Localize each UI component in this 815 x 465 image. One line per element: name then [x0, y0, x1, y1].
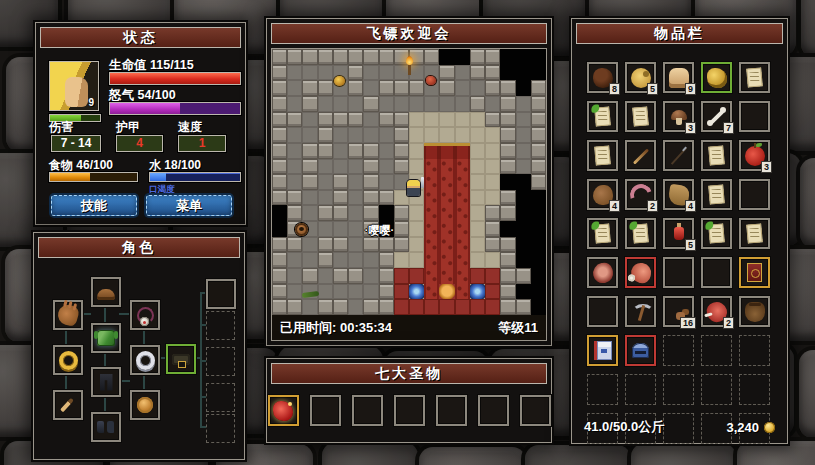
wall-tile [333, 205, 348, 221]
wall-tile [500, 80, 515, 96]
map-wrap: ·嘤嘤· 已用时间: 00:35:34 等级11 [271, 48, 547, 341]
stack-count: 5 [647, 83, 658, 95]
wall-tile [516, 268, 531, 284]
floor-tile [287, 268, 302, 284]
wall-tile [379, 112, 394, 128]
carpet-tile [424, 174, 439, 190]
floor-tile [333, 252, 348, 268]
unexplored-tile [516, 205, 531, 221]
floor-tile [424, 96, 439, 112]
inventory-slot-10[interactable] [739, 101, 770, 132]
map-title: 飞镖欢迎会 [271, 23, 547, 44]
wall-tile [485, 221, 500, 237]
floor-tile [363, 65, 378, 81]
equipment-slot-amulet[interactable] [130, 300, 160, 330]
carpet-trim-tile [455, 143, 470, 159]
skills-button[interactable]: 技能 [51, 195, 137, 216]
armor-label: 护甲 [116, 119, 140, 136]
carpet-tile [424, 221, 439, 237]
wall-tile [379, 237, 394, 253]
stone-floor-tile [439, 127, 454, 143]
carpet-trim-tile [439, 143, 454, 159]
equipment-slot-bag-2[interactable] [206, 347, 235, 376]
unexplored-tile [531, 49, 546, 65]
floor-tile [333, 96, 348, 112]
wall-tile [531, 112, 546, 128]
wall-tile [333, 268, 348, 284]
wall-tile [394, 143, 409, 159]
inventory-slot-8[interactable]: 3 [663, 101, 694, 132]
carpet-tile [455, 190, 470, 206]
pants-icon [100, 374, 113, 391]
floor-tile [348, 284, 363, 300]
dungeon-map[interactable]: ·嘤嘤· [272, 49, 546, 315]
inventory-slot-22[interactable] [625, 218, 656, 249]
cap-icon [97, 289, 115, 300]
stone-floor-tile [409, 112, 424, 128]
inventory-slot-16[interactable]: 4 [587, 179, 618, 210]
wall-tile [333, 49, 348, 65]
floor-tile [348, 252, 363, 268]
floor-tile [287, 284, 302, 300]
relic-slot-4[interactable] [394, 395, 425, 426]
stone-floor-tile [470, 174, 485, 190]
carpet-tile [439, 190, 454, 206]
wall-tile [272, 96, 287, 112]
throne-room-tile [439, 299, 454, 315]
unexplored-tile [272, 221, 287, 237]
floor-tile [302, 252, 317, 268]
carpet-tile [439, 205, 454, 221]
inventory-slot-13[interactable] [663, 140, 694, 171]
stone-floor-tile [470, 221, 485, 237]
inventory-slot-9[interactable]: 7 [701, 101, 732, 132]
wall-tile [500, 299, 515, 315]
inventory-slot-34[interactable]: 2 [701, 296, 732, 327]
unexplored-tile [272, 205, 287, 221]
wall-tile [272, 49, 287, 65]
wall-tile [287, 299, 302, 315]
wall-tile [318, 205, 333, 221]
status-panel: 状态 9 生命值 115/115 怒气 54/100 伤害 护甲 速度 7 - … [35, 22, 246, 225]
floor-tile [348, 96, 363, 112]
equipment-connector-line [104, 395, 106, 412]
inventory-slot-42[interactable] [625, 374, 656, 405]
wall-tile [485, 49, 500, 65]
wall-tile [302, 268, 317, 284]
unexplored-tile [531, 237, 546, 253]
carpet-tile [455, 159, 470, 175]
throne-room-tile [485, 284, 500, 300]
wall-tile [500, 284, 515, 300]
stack-count: 4 [685, 200, 696, 212]
floor-tile [302, 127, 317, 143]
floor-tile [348, 190, 363, 206]
floor-tile [455, 96, 470, 112]
stone-floor-tile [485, 159, 500, 175]
equipment-slot-bag-3[interactable] [206, 383, 235, 412]
wall-tile [272, 237, 287, 253]
throne-room-tile [424, 299, 439, 315]
floor-tile [363, 284, 378, 300]
inventory-slot-11[interactable] [587, 140, 618, 171]
relic-slot-1[interactable] [268, 395, 299, 426]
wall-tile [500, 268, 515, 284]
floor-tile [302, 65, 317, 81]
floor-tile [287, 159, 302, 175]
stone-floor-tile [424, 112, 439, 128]
hp-bar [109, 72, 241, 85]
unexplored-tile [516, 221, 531, 237]
stone-floor-tile [470, 112, 485, 128]
stone-floor-tile [409, 127, 424, 143]
carpet-tile [424, 190, 439, 206]
wall-tile [333, 174, 348, 190]
inventory-slot-29[interactable] [701, 257, 732, 288]
floor-tile [302, 299, 317, 315]
unexplored-tile [516, 284, 531, 300]
speed-value: 1 [178, 135, 226, 152]
wall-tile [272, 268, 287, 284]
equipment-slot-cap[interactable] [91, 277, 121, 307]
barrel-sprite [295, 223, 308, 236]
equipment-connector-line [104, 351, 106, 367]
inventory-slot-40[interactable] [739, 335, 770, 366]
wall-tile [302, 174, 317, 190]
inventory-slot-45[interactable] [739, 374, 770, 405]
carpet-tile [455, 252, 470, 268]
inventory-slot-5[interactable] [739, 62, 770, 93]
gold-display: 3,240 [726, 420, 775, 435]
throne-tile [439, 284, 454, 300]
floor-tile [363, 80, 378, 96]
carpet-tile [439, 268, 454, 284]
wall-tile [500, 159, 515, 175]
wall-tile [348, 112, 363, 128]
stone-floor-tile [470, 190, 485, 206]
amulet-icon [137, 307, 154, 324]
map-panel: 飞镖欢迎会 ·嘤嘤· 已用时间: 00:35:34 等级11 [266, 18, 552, 346]
scroll-icon [594, 145, 611, 165]
floor-tile [363, 112, 378, 128]
unexplored-tile [516, 190, 531, 206]
wall-tile [318, 49, 333, 65]
stone-block [525, 445, 631, 465]
carpet-tile [439, 159, 454, 175]
equipment-slot-dagger[interactable] [53, 390, 83, 420]
throne-room-tile [394, 268, 409, 284]
wall-tile [318, 127, 333, 143]
wall-tile [439, 80, 454, 96]
throne-room-tile [470, 299, 485, 315]
unexplored-tile [516, 49, 531, 65]
stone-block [800, 158, 815, 248]
floor-tile [318, 268, 333, 284]
speed-label: 速度 [178, 119, 202, 136]
floor-tile [516, 96, 531, 112]
wall-tile [287, 112, 302, 128]
wall-tile [470, 65, 485, 81]
wall-tile [287, 237, 302, 253]
floor-tile [318, 96, 333, 112]
tome-icon [747, 263, 762, 282]
stone-floor-tile [409, 237, 424, 253]
wall-tile [379, 299, 394, 315]
wall-tile [272, 65, 287, 81]
inventory-slot-32[interactable] [625, 296, 656, 327]
unexplored-tile [379, 205, 394, 221]
menu-button[interactable]: 菜单 [146, 195, 232, 216]
pick-icon [631, 302, 651, 322]
relic-slot-5[interactable] [436, 395, 467, 426]
throne-room-tile [470, 268, 485, 284]
stone-floor-tile [409, 221, 424, 237]
relics-panel: 七大圣物 [266, 358, 552, 443]
stone-floor-tile [455, 127, 470, 143]
map-infobar: 已用时间: 00:35:34 等级11 [272, 315, 546, 340]
wall-tile [302, 159, 317, 175]
equipment-slot-ring-silver[interactable] [130, 345, 160, 375]
relic-slot-3[interactable] [352, 395, 383, 426]
wall-tile [379, 252, 394, 268]
inventory-slot-43[interactable] [663, 374, 694, 405]
wall-tile [287, 49, 302, 65]
wall-tile [348, 143, 363, 159]
rings-icon [136, 351, 155, 370]
wall-tile [348, 65, 363, 81]
floor-tile [363, 252, 378, 268]
tunic-icon [97, 330, 115, 346]
wall-tile [272, 112, 287, 128]
inventory-slot-15[interactable]: 3 [739, 140, 770, 171]
inventory-slot-44[interactable] [701, 374, 732, 405]
wall-tile [500, 112, 515, 128]
wall-tile [500, 205, 515, 221]
relic-slot-7[interactable] [520, 395, 551, 426]
stone-floor-tile [424, 127, 439, 143]
equipment-connector-line [143, 328, 145, 345]
wall-tile [363, 237, 378, 253]
wall-tile [500, 127, 515, 143]
floor-tile [516, 143, 531, 159]
carpet-tile [424, 252, 439, 268]
equipment-connector-line [65, 373, 67, 390]
wall-tile [272, 159, 287, 175]
inventory-slot-20[interactable] [739, 179, 770, 210]
inventory-slot-2[interactable]: 5 [625, 62, 656, 93]
stone-floor-tile [485, 143, 500, 159]
stone-floor-tile [455, 112, 470, 128]
equipment-slot-gloves[interactable] [53, 300, 83, 330]
equipment-connector-line [143, 373, 145, 390]
unexplored-tile [516, 65, 531, 81]
dungeon-level-label: 等级11 [498, 319, 538, 337]
floor-tile [394, 96, 409, 112]
scroll-icon [708, 145, 725, 165]
speech-text: ·嘤嘤· [365, 223, 394, 238]
equipment-slot-offhand-plate[interactable] [130, 390, 160, 420]
stack-count: 3 [761, 161, 772, 173]
wall-tile [424, 49, 439, 65]
stone-floor-tile [470, 143, 485, 159]
floor-tile [318, 190, 333, 206]
inventory-slot-4[interactable] [701, 62, 732, 93]
equipment-slot-extra[interactable] [206, 279, 236, 309]
stone-floor-tile [470, 159, 485, 175]
equipment-slot-pants[interactable] [91, 367, 121, 397]
inventory-slot-21[interactable] [587, 218, 618, 249]
stone-floor-tile [409, 143, 424, 159]
wall-tile [531, 143, 546, 159]
inventory-slot-6[interactable] [587, 101, 618, 132]
stone-block [631, 443, 736, 465]
inventory-slot-1[interactable]: 8 [587, 62, 618, 93]
throne-room-tile [409, 268, 424, 284]
unexplored-tile [500, 221, 515, 237]
wall-tile [272, 252, 287, 268]
inventory-slot-41[interactable] [587, 374, 618, 405]
inventory-slot-24[interactable] [701, 218, 732, 249]
inventory-slot-36[interactable] [587, 335, 618, 366]
floor-tile [318, 65, 333, 81]
inventory-slot-25[interactable] [739, 218, 770, 249]
ringg-icon [59, 351, 78, 370]
water-bar [149, 172, 241, 182]
floor-tile [318, 159, 333, 175]
equipment-slot-bag-1[interactable] [206, 311, 235, 340]
wall-tile [485, 65, 500, 81]
stack-count: 4 [609, 200, 620, 212]
floor-tile [455, 80, 470, 96]
throne-room-tile [455, 299, 470, 315]
wall-tile [379, 49, 394, 65]
inventory-slot-33[interactable]: 16 [663, 296, 694, 327]
inventory-slot-12[interactable] [625, 140, 656, 171]
inventory-slot-31[interactable] [587, 296, 618, 327]
inventory-slot-17[interactable]: 2 [625, 179, 656, 210]
portal-tile [470, 284, 485, 300]
plate-icon [137, 397, 153, 413]
floor-tile [363, 127, 378, 143]
inventory-slot-18[interactable]: 4 [663, 179, 694, 210]
inventory-slot-26[interactable] [587, 257, 618, 288]
inventory-grid: 8593734245162 [587, 62, 766, 444]
unexplored-tile [531, 221, 546, 237]
wall-tile [363, 96, 378, 112]
inventory-slot-39[interactable] [701, 335, 732, 366]
floor-tile [379, 127, 394, 143]
equipment-slot-ring-gold[interactable] [53, 345, 83, 375]
scroll-icon [632, 106, 649, 126]
nugget-icon [707, 68, 727, 88]
inventory-slot-7[interactable] [625, 101, 656, 132]
inventory-slot-3[interactable]: 9 [663, 62, 694, 93]
stack-count: 7 [723, 122, 734, 134]
wall-tile [272, 284, 287, 300]
wall-tile [531, 174, 546, 190]
relic-slot-2[interactable] [310, 395, 341, 426]
carpet-tile [424, 284, 439, 300]
wall-tile [394, 80, 409, 96]
equipment-slot-armor[interactable] [91, 323, 121, 353]
inventory-slot-14[interactable] [701, 140, 732, 171]
wall-tile [531, 159, 546, 175]
steak-icon [591, 261, 615, 285]
inventory-slot-30[interactable] [739, 257, 770, 288]
floor-tile [379, 96, 394, 112]
wall-tile [272, 127, 287, 143]
avatar[interactable]: 9 [49, 61, 99, 111]
wall-tile [500, 190, 515, 206]
inventory-slot-38[interactable] [663, 335, 694, 366]
wall-tile [302, 80, 317, 96]
floor-tile [348, 205, 363, 221]
stone-floor-tile [394, 252, 409, 268]
carpet-tile [424, 268, 439, 284]
equipment-connector-line [65, 328, 67, 345]
wall-tile [287, 205, 302, 221]
ham-icon [629, 261, 652, 284]
wall-tile [516, 299, 531, 315]
wall-tile [348, 268, 363, 284]
unexplored-tile [531, 205, 546, 221]
scrollherb-icon [594, 106, 611, 126]
stone-block [737, 441, 815, 465]
wall-tile [272, 143, 287, 159]
floor-tile [318, 284, 333, 300]
elapsed-time-label: 已用时间: 00:35:34 [280, 319, 392, 337]
inventory-footer: 41.0/50.0公斤 3,240 [584, 418, 775, 436]
wall-tile [318, 252, 333, 268]
wall-tile [485, 112, 500, 128]
stone-floor-tile [470, 205, 485, 221]
wall-tile [500, 143, 515, 159]
stone-floor-tile [485, 127, 500, 143]
stone-floor-tile [439, 112, 454, 128]
inventory-slot-35[interactable] [739, 296, 770, 327]
unexplored-tile [531, 252, 546, 268]
floor-tile [287, 96, 302, 112]
stack-count: 2 [723, 317, 734, 329]
stone-floor-tile [409, 252, 424, 268]
torch-sprite [406, 62, 413, 76]
stone-block [419, 447, 526, 465]
equipment-slot-bag-4[interactable] [206, 414, 235, 443]
unexplored-tile [516, 252, 531, 268]
relic-slot-6[interactable] [478, 395, 509, 426]
wall-tile [394, 127, 409, 143]
wall-tile [485, 80, 500, 96]
game-screen: 状态 9 生命值 115/115 怒气 54/100 伤害 护甲 速度 7 - … [0, 0, 815, 465]
scrollherb-icon [708, 223, 725, 243]
carpet-tile [455, 205, 470, 221]
inventory-slot-37[interactable] [625, 335, 656, 366]
wall-tile [318, 237, 333, 253]
floor-tile [302, 112, 317, 128]
inventory-slot-28[interactable] [663, 257, 694, 288]
floor-tile [318, 221, 333, 237]
floor-tile [379, 174, 394, 190]
gold-amount: 3,240 [726, 420, 759, 435]
inventory-slot-23[interactable]: 5 [663, 218, 694, 249]
equipment-slot-belt[interactable] [166, 344, 196, 374]
floor-tile [287, 174, 302, 190]
inventory-slot-19[interactable] [701, 179, 732, 210]
wall-tile [470, 96, 485, 112]
equipment-slot-boots[interactable] [91, 412, 121, 442]
inventory-slot-27[interactable] [625, 257, 656, 288]
floor-tile [302, 205, 317, 221]
